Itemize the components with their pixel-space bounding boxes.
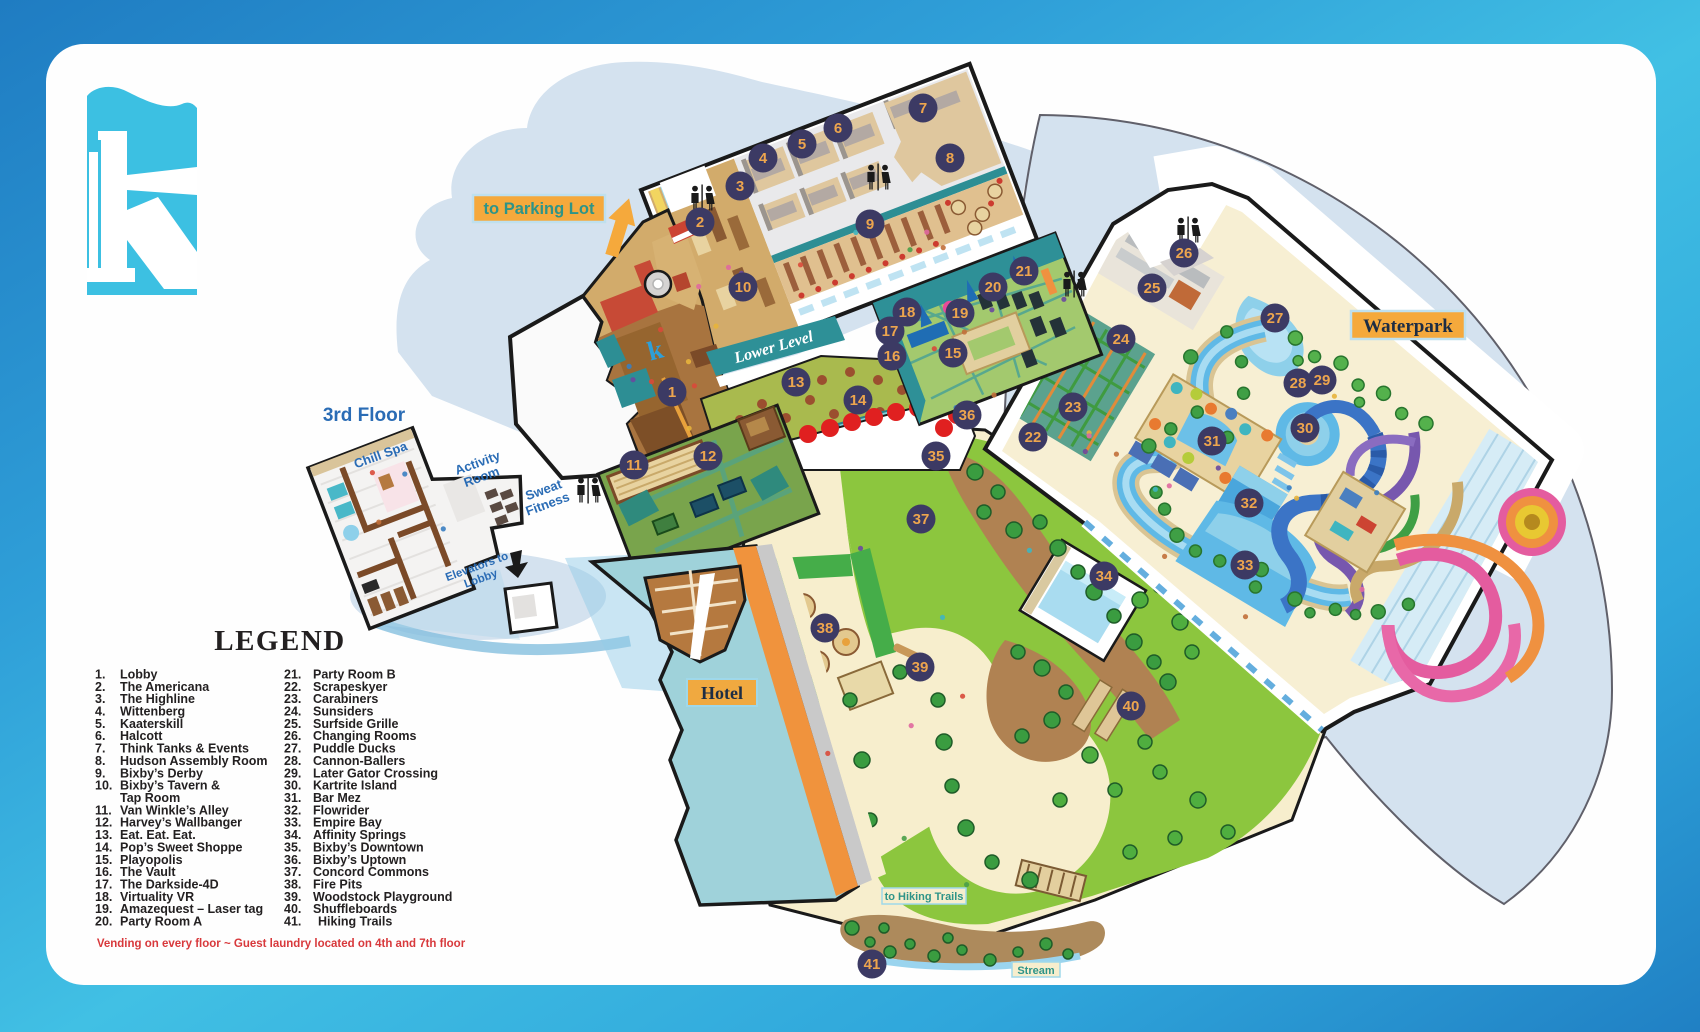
svg-text:14: 14 [850, 392, 867, 409]
svg-text:Party Room A: Party Room A [120, 915, 202, 929]
svg-text:34: 34 [1096, 568, 1113, 585]
svg-text:LEGEND: LEGEND [214, 625, 345, 657]
svg-text:35: 35 [928, 448, 945, 465]
svg-text:Waterpark: Waterpark [1363, 316, 1453, 337]
svg-text:10: 10 [735, 279, 752, 296]
svg-text:6: 6 [834, 120, 842, 137]
svg-text:Hotel: Hotel [701, 683, 743, 703]
svg-text:1: 1 [668, 384, 676, 401]
svg-text:16: 16 [884, 348, 901, 365]
svg-text:30: 30 [1297, 420, 1314, 437]
svg-text:19: 19 [952, 305, 969, 322]
svg-text:36: 36 [959, 407, 976, 424]
svg-text:9: 9 [866, 216, 874, 233]
svg-text:26: 26 [1176, 245, 1193, 262]
svg-text:33: 33 [1237, 557, 1254, 574]
svg-text:12: 12 [700, 448, 717, 465]
svg-text:8: 8 [946, 150, 954, 167]
svg-text:18: 18 [899, 304, 916, 321]
svg-text:3rd Floor: 3rd Floor [323, 405, 406, 426]
svg-text:29: 29 [1314, 372, 1331, 389]
svg-text:27: 27 [1267, 310, 1284, 327]
svg-text:11: 11 [626, 457, 642, 474]
svg-text:20: 20 [985, 279, 1002, 296]
svg-text:5: 5 [798, 136, 806, 153]
svg-text:7: 7 [919, 100, 927, 117]
svg-text:2: 2 [696, 214, 704, 231]
svg-text:41.: 41. [284, 915, 301, 929]
svg-text:to Parking Lot: to Parking Lot [484, 200, 595, 218]
svg-text:4: 4 [759, 150, 768, 167]
svg-text:22: 22 [1025, 429, 1042, 446]
svg-text:10.: 10. [95, 779, 112, 793]
svg-text:37: 37 [913, 511, 930, 528]
svg-text:17: 17 [882, 323, 899, 340]
svg-text:39: 39 [912, 659, 929, 676]
svg-text:Hiking Trails: Hiking Trails [318, 915, 392, 929]
svg-text:3: 3 [736, 178, 744, 195]
svg-text:13: 13 [788, 374, 805, 391]
svg-text:38: 38 [817, 620, 834, 637]
svg-text:31: 31 [1204, 433, 1221, 450]
svg-text:41: 41 [864, 956, 881, 973]
svg-text:21: 21 [1016, 263, 1033, 280]
svg-text:40: 40 [1123, 698, 1140, 715]
svg-text:Stream: Stream [1017, 965, 1055, 977]
svg-text:25: 25 [1144, 280, 1161, 297]
svg-text:23: 23 [1065, 399, 1082, 416]
svg-text:to Hiking Trails: to Hiking Trails [885, 891, 964, 903]
svg-text:32: 32 [1241, 495, 1258, 512]
svg-text:15: 15 [945, 345, 962, 362]
svg-text:24: 24 [1113, 331, 1130, 348]
svg-text:20.: 20. [95, 915, 112, 929]
svg-text:28: 28 [1290, 375, 1307, 392]
svg-text:Vending on every floor ~ Guest: Vending on every floor ~ Guest laundry l… [97, 938, 466, 950]
